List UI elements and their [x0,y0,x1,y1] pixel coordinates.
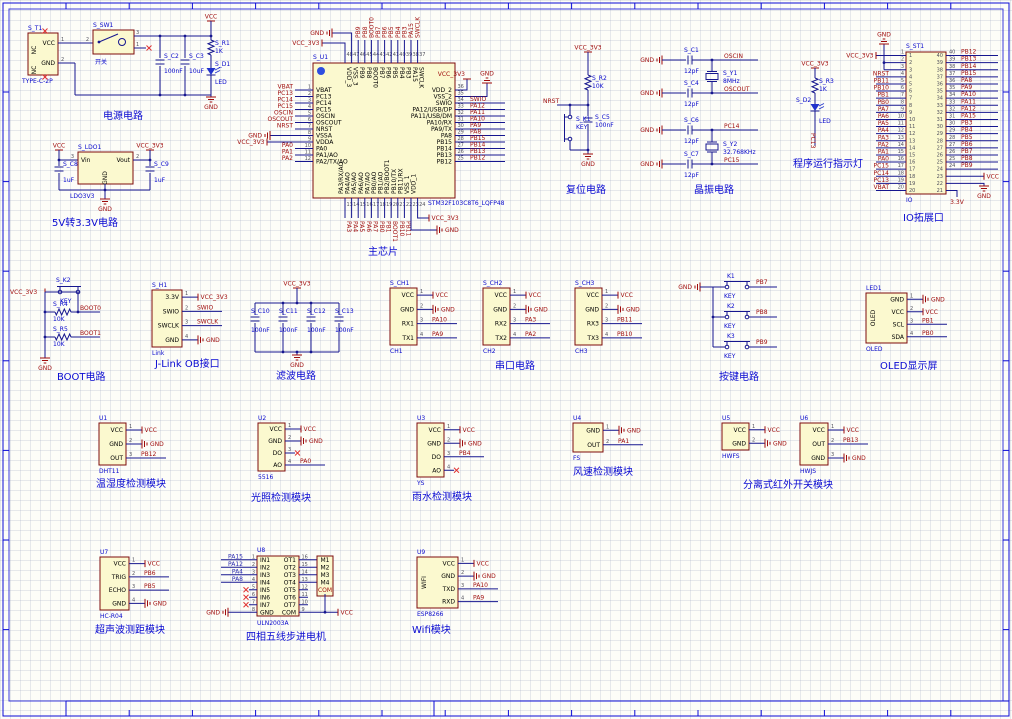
svg-text:TX3: TX3 [586,335,599,342]
svg-text:GND: GND [165,337,179,344]
svg-text:2: 2 [606,439,609,445]
svg-text:S_SW1: S_SW1 [93,22,114,29]
component-s_ch2[interactable]: S_CH2CH2VCC1VCCGND2GNDRX23PA3TX24PA2 [483,280,550,355]
svg-text:VDD_3: VDD_3 [345,67,352,87]
svg-text:29: 29 [458,130,464,136]
svg-text:VCC: VCC [587,292,599,299]
block-title-serial: 串口电路 [495,359,535,372]
svg-text:3: 3 [132,584,135,590]
svg-text:29: 29 [949,128,955,134]
svg-text:23: 23 [937,174,943,180]
svg-text:VCC: VCC [926,309,938,316]
svg-text:IO拓展口: IO拓展口 [903,212,944,224]
svg-text:M1: M1 [321,557,330,564]
svg-text:NC: NC [31,66,38,75]
svg-text:S_D1: S_D1 [215,61,230,68]
svg-text:分离式红外开关模块: 分离式红外开关模块 [743,478,833,491]
svg-text:PB3: PB3 [404,67,411,79]
svg-text:U6: U6 [800,415,808,422]
svg-text:25: 25 [949,156,955,162]
svg-text:Vout: Vout [117,157,131,164]
svg-text:HWJS: HWJS [800,468,816,475]
component-s_u1[interactable]: S_U1STM32F103C8T6_LQFP48VBAT1VBATPC132PC… [237,16,505,242]
svg-text:VCC: VCC [205,14,217,21]
svg-text:1: 1 [129,424,132,430]
svg-text:PA2: PA2 [525,331,536,338]
svg-text:26: 26 [937,152,943,158]
svg-text:PA1: PA1 [618,438,629,445]
svg-text:PA8: PA8 [961,77,972,84]
svg-text:40: 40 [937,53,943,59]
svg-text:OT2: OT2 [284,564,296,571]
svg-text:27: 27 [458,143,464,149]
component-s_h1[interactable]: S_H1Link3.3V1VCC_3V3SWIO2SWIOSWCLK3SWCLK… [152,282,228,357]
boot-circuit[interactable]: VCC_3V3S_K2KEYS_R410KBOOT0S_R510KBOOT1GN… [10,277,101,372]
svg-text:3.3V: 3.3V [165,294,180,301]
block-title-ldo: 5V转3.3V电路 [52,216,118,229]
svg-text:PA9: PA9 [961,84,972,91]
reset-circuit[interactable]: VCC_3V3S_R210KS_C5100nFNRSTS_K1KEYGND [543,45,614,169]
svg-text:PA3: PA3 [878,134,889,141]
svg-text:1: 1 [752,424,755,430]
svg-text:DO: DO [273,450,283,457]
block-title-stepper: 四相五线步进电机 [246,630,326,643]
svg-text:PA12: PA12 [961,105,976,112]
svg-text:5: 5 [909,81,912,87]
svg-text:1: 1 [461,557,464,563]
svg-text:S_K1: S_K1 [576,116,591,123]
svg-text:1: 1 [136,42,139,48]
svg-text:PA3: PA3 [345,221,352,232]
svg-text:2: 2 [752,437,755,443]
component-led1[interactable]: LED1OLEDOLEDGND1GNDVCC2VCCSCL3PB1SDA4PB0 [866,285,947,353]
svg-text:SCL: SCL [893,321,905,328]
svg-text:4: 4 [461,596,464,602]
svg-text:PB8: PB8 [365,67,372,79]
svg-text:2: 2 [61,57,64,63]
svg-text:PA9: PA9 [473,595,484,602]
svg-text:GND: GND [586,427,600,434]
svg-text:OT7: OT7 [284,602,296,609]
component-u4[interactable]: U4FSGND1GNDOUT2PA1 [573,415,643,462]
svg-text:U8: U8 [257,547,265,554]
svg-text:GND: GND [204,104,218,111]
block-title-dht: 温湿度检测模块 [96,477,166,490]
svg-text:GND: GND [585,306,599,313]
svg-text:PB7: PB7 [961,148,973,155]
svg-text:GND: GND [98,206,112,213]
svg-text:PB4: PB4 [459,450,471,457]
svg-text:PB7: PB7 [756,279,768,286]
svg-text:LED1: LED1 [866,285,882,292]
svg-text:U2: U2 [258,415,266,422]
svg-text:1: 1 [901,50,904,56]
svg-text:PB9: PB9 [358,67,365,79]
svg-text:2: 2 [288,435,291,441]
run-led-circuit[interactable]: VCC_3V3S_R31KS_D2LEDPC13 [796,61,834,149]
svg-text:BOOT1: BOOT1 [391,221,398,242]
svg-text:PA5: PA5 [878,120,889,127]
svg-text:3: 3 [136,30,139,36]
svg-text:CH1: CH1 [390,348,403,355]
svg-text:21: 21 [937,188,943,194]
svg-text:电源电路: 电源电路 [103,109,143,122]
svg-text:PC15: PC15 [874,163,890,170]
svg-text:PB11: PB11 [404,221,411,237]
svg-text:OSCOUT: OSCOUT [724,86,750,93]
component-s_st1[interactable]: S_ST1IO140VCC_3V3140PB12239239PB13338338… [846,32,999,207]
svg-text:36: 36 [949,78,955,84]
block-title-filter: 滤波电路 [276,369,316,382]
svg-text:1: 1 [831,424,834,430]
svg-text:6: 6 [901,85,904,91]
svg-text:PB7: PB7 [378,67,385,79]
svg-text:温湿度检测模块: 温湿度检测模块 [96,477,166,490]
svg-text:PB4: PB4 [961,127,973,134]
svg-text:3: 3 [513,318,516,324]
svg-text:PB10: PB10 [617,331,633,338]
svg-text:PC13: PC13 [874,177,890,184]
svg-text:VBAT: VBAT [873,184,889,191]
block-title-power: 电源电路 [103,109,143,122]
svg-text:SWCLK: SWCLK [197,319,219,326]
svg-text:GND: GND [309,438,323,445]
power-circuit[interactable]: S_T1TYPE-C-2PNCNCVCCGND12S_SW1开关231VCCS_… [21,14,230,112]
svg-text:35: 35 [937,89,943,95]
svg-text:VCC_3V3: VCC_3V3 [136,143,163,150]
svg-text:VCC_3V3: VCC_3V3 [801,61,828,68]
svg-text:27: 27 [949,142,955,148]
svg-text:GND: GND [41,60,55,67]
svg-text:VCC: VCC [477,560,489,567]
svg-text:S_C2: S_C2 [164,53,179,60]
svg-text:雨水检测模块: 雨水检测模块 [412,490,472,503]
component-u9[interactable]: U9ESP8266WIFIVCC1VCCGND2GNDTXD3PA10RXD4P… [417,549,498,618]
svg-text:VCC: VCC [892,309,904,316]
svg-text:PA4: PA4 [878,127,889,134]
svg-text:3: 3 [910,318,913,324]
svg-text:10: 10 [909,117,915,123]
component-u1[interactable]: U1DHT11VCC1VCCGND2GNDOUT3PB12 [99,415,166,475]
svg-text:S_C5: S_C5 [595,114,610,121]
svg-text:GND: GND [811,455,825,462]
schematic-canvas[interactable]: 电源电路5V转3.3V电路主芯片复位电路晶振电路程序运行指示灯IO拓展口BOOT… [0,0,1012,719]
svg-text:1: 1 [132,558,135,564]
svg-text:8: 8 [909,103,912,109]
svg-text:PA5: PA5 [358,221,365,232]
crystal-circuit[interactable]: GNDS_C112pFOSCINGNDS_C412pFOSCOUTGNDS_C6… [640,47,758,179]
block-title-jlink: J-Link OB接口 [154,357,220,370]
svg-text:PA1: PA1 [878,148,889,155]
svg-text:12pF: 12pF [684,68,699,75]
svg-text:33: 33 [949,99,955,105]
svg-text:4: 4 [288,459,291,465]
svg-text:PB9: PB9 [961,162,973,169]
svg-text:开关: 开关 [95,58,107,66]
svg-text:PB13: PB13 [961,56,977,63]
key-circuit[interactable]: GNDK1KEYPB7K2KEYPB8K3KEYPB9 [678,273,777,360]
svg-text:RX2: RX2 [495,321,507,328]
svg-text:GND: GND [732,440,746,447]
svg-text:GND: GND [493,306,507,313]
block-title-oled: OLED显示屏 [880,360,937,372]
svg-text:PC14: PC14 [724,123,740,130]
svg-text:IN4: IN4 [260,579,270,586]
svg-text:GND: GND [268,438,282,445]
svg-text:TRIG: TRIG [111,574,127,581]
svg-text:100nF: 100nF [307,327,326,334]
svg-text:24: 24 [419,202,425,208]
svg-text:S_C8: S_C8 [63,161,78,168]
svg-text:S_C10: S_C10 [251,308,270,315]
component-u3[interactable]: U3YSVCC1VCCGND2GNDDO3PB4AO4 [416,415,484,487]
svg-text:S_C13: S_C13 [335,308,354,315]
svg-text:SWIO: SWIO [197,304,214,311]
svg-text:YS: YS [416,480,425,487]
svg-text:4: 4 [185,334,188,340]
svg-text:15: 15 [898,149,904,155]
svg-text:13: 13 [898,135,904,141]
svg-text:S_T1: S_T1 [28,25,42,32]
svg-text:30: 30 [949,121,955,127]
svg-text:S_D2: S_D2 [796,97,811,104]
svg-text:10uF: 10uF [189,68,204,75]
svg-text:S_C9: S_C9 [154,161,169,168]
svg-text:GND: GND [890,296,904,303]
svg-text:33: 33 [937,103,943,109]
svg-text:U3: U3 [417,415,425,422]
svg-text:PB0: PB0 [877,99,889,106]
svg-text:PA6: PA6 [878,113,889,120]
svg-text:AO: AO [273,462,282,469]
svg-text:串口电路: 串口电路 [495,359,535,372]
svg-text:VCC: VCC [341,609,353,616]
svg-text:30: 30 [937,124,943,130]
svg-text:晶振电路: 晶振电路 [694,183,734,196]
block-title-ir: 分离式红外开关模块 [743,478,833,491]
svg-text:S_LDO1: S_LDO1 [78,144,101,151]
svg-text:GND: GND [445,227,459,234]
svg-text:PB8: PB8 [961,155,973,162]
svg-text:M4: M4 [321,579,330,586]
svg-text:3: 3 [420,318,423,324]
svg-text:GND: GND [38,365,52,372]
svg-text:28: 28 [458,136,464,142]
svg-text:1uF: 1uF [154,177,166,184]
svg-text:VCC: VCC [495,292,507,299]
svg-text:SDA: SDA [892,334,905,341]
svg-text:OLED显示屏: OLED显示屏 [880,360,937,372]
svg-text:26: 26 [458,149,464,155]
svg-text:30: 30 [458,123,464,129]
svg-text:1: 1 [185,291,188,297]
svg-text:1: 1 [447,424,450,430]
svg-text:GND: GND [206,609,220,616]
svg-text:4: 4 [605,332,608,338]
svg-text:3: 3 [447,451,450,457]
component-s_ch1[interactable]: S_CH1CH1VCC1VCCGND2GNDRX13PA10TX14PA9 [390,280,457,355]
svg-text:ECHO: ECHO [109,587,126,594]
svg-text:S_Y2: S_Y2 [723,141,737,148]
svg-text:100nF: 100nF [279,327,298,334]
svg-text:超声波测距模块: 超声波测距模块 [95,623,165,636]
block-title-wifi: Wifi模块 [412,624,451,636]
svg-text:24: 24 [937,167,943,173]
svg-text:IN5: IN5 [260,587,270,594]
svg-text:PA4: PA4 [232,568,243,575]
ldo-circuit[interactable]: VCCS_LDO1LDO3V3VinVoutGND32S_C81uFVCC_3V… [53,143,169,214]
svg-text:Vin: Vin [81,157,91,164]
svg-text:程序运行指示灯: 程序运行指示灯 [793,157,863,170]
svg-text:PB1: PB1 [922,317,934,324]
component-u7[interactable]: U7HC-R04VCC1VCCTRIG2PB6ECHO3PB5GND4GND [100,549,169,620]
svg-text:16: 16 [898,156,904,162]
svg-text:22: 22 [937,181,943,187]
svg-text:VCC: VCC [443,560,455,567]
svg-text:VCC_3V3: VCC_3V3 [574,45,601,52]
svg-text:TYPE-C-2P: TYPE-C-2P [21,78,53,85]
svg-text:VCC_3V3: VCC_3V3 [292,40,319,47]
svg-text:14: 14 [898,142,904,148]
component-u5[interactable]: U5HWFSVCC1VCCGND2GND [722,415,787,460]
svg-text:17: 17 [898,163,904,169]
svg-text:STM32F103C8T6_LQFP48: STM32F103C8T6_LQFP48 [428,200,505,207]
svg-text:GND: GND [640,161,654,168]
svg-text:VCC: VCC [847,427,859,434]
svg-text:PB12: PB12 [961,49,977,56]
svg-text:39: 39 [949,57,955,63]
svg-text:RX1: RX1 [402,321,414,328]
svg-text:3: 3 [909,67,912,73]
svg-text:CH2: CH2 [483,348,496,355]
svg-text:GND: GND [290,362,304,369]
svg-text:S_R2: S_R2 [592,75,607,82]
svg-text:VCC: VCC [621,292,633,299]
schematic-sheet: 电源电路5V转3.3V电路主芯片复位电路晶振电路程序运行指示灯IO拓展口BOOT… [0,0,1012,719]
svg-text:34: 34 [458,97,464,103]
svg-text:1: 1 [288,423,291,429]
svg-text:38: 38 [937,67,943,73]
component-u8[interactable]: U8ULN2003AIN11PA15OT116IN22PA12OT215IN33… [206,547,353,627]
svg-text:AO: AO [432,467,441,474]
svg-text:3: 3 [185,320,188,326]
svg-text:3: 3 [901,64,904,70]
svg-text:4: 4 [420,332,423,338]
svg-text:28: 28 [937,138,943,144]
svg-text:1: 1 [420,289,423,295]
svg-text:PB5: PB5 [144,583,156,590]
svg-text:3: 3 [129,452,132,458]
svg-text:3: 3 [605,318,608,324]
svg-text:RX3: RX3 [587,321,599,328]
svg-text:GND: GND [441,306,455,313]
svg-text:37: 37 [937,74,943,80]
svg-text:10K: 10K [53,341,66,348]
svg-text:DO: DO [432,454,442,461]
svg-text:PB12: PB12 [437,159,453,166]
svg-text:2: 2 [910,306,913,312]
svg-text:IN3: IN3 [260,572,270,579]
svg-text:GND: GND [310,30,324,37]
svg-text:OT6: OT6 [284,594,296,601]
svg-text:SWCLK: SWCLK [415,16,422,38]
svg-text:5516: 5516 [258,474,273,481]
svg-text:GND: GND [534,306,548,313]
svg-text:VCC: VCC [429,427,441,434]
svg-text:IN7: IN7 [260,602,270,609]
svg-text:35: 35 [949,85,955,91]
svg-text:KEY: KEY [576,124,588,131]
component-u2[interactable]: U25516VCC1VCCGND2GNDDO3AO4PA0 [258,415,325,481]
svg-text:VCC: VCC [436,292,448,299]
svg-text:OT3: OT3 [284,572,296,579]
svg-text:LDO3V3: LDO3V3 [70,193,95,200]
svg-text:PB0: PB0 [378,221,385,233]
svg-text:S_R3: S_R3 [819,78,834,85]
filter-circuit[interactable]: VCC_3V3S_C10100nFS_C11100nFS_C12100nFS_C… [251,281,355,370]
svg-text:KEY: KEY [724,353,736,360]
svg-text:VCC: VCC [145,427,157,434]
block-title-rain: 雨水检测模块 [412,490,472,503]
svg-text:OT1: OT1 [284,557,296,564]
svg-text:2: 2 [513,303,516,309]
svg-text:U4: U4 [573,415,581,422]
svg-text:Link: Link [152,350,165,357]
svg-text:PA15: PA15 [411,67,418,82]
svg-text:PA2: PA2 [282,155,293,162]
svg-text:RXD: RXD [442,599,455,606]
svg-text:S_C4: S_C4 [684,80,699,87]
svg-text:37: 37 [949,71,955,77]
svg-text:S_R1: S_R1 [215,40,230,47]
svg-text:主芯片: 主芯片 [368,245,398,258]
svg-text:29: 29 [937,131,943,137]
svg-text:6: 6 [909,89,912,95]
svg-text:U1: U1 [99,415,107,422]
svg-text:S_R5: S_R5 [53,326,68,333]
svg-text:40: 40 [949,50,955,56]
svg-text:S_CH3: S_CH3 [575,280,595,287]
svg-text:PB15: PB15 [961,70,977,77]
svg-text:VCC: VCC [987,173,999,180]
svg-text:33: 33 [458,104,464,110]
component-u6[interactable]: U6HWJSVCC1VCCOUT2PB13GND3GND [800,415,868,475]
svg-text:2: 2 [831,438,834,444]
svg-text:PC13: PC13 [809,133,816,149]
svg-text:VCC: VCC [304,426,316,433]
svg-text:31: 31 [949,113,955,119]
svg-text:VCC_3V3: VCC_3V3 [432,215,459,222]
svg-text:PB4: PB4 [398,67,405,79]
svg-text:S_C3: S_C3 [189,53,204,60]
svg-text:2: 2 [605,303,608,309]
svg-text:OUT: OUT [812,441,825,448]
svg-text:GND: GND [441,573,455,580]
svg-text:IN6: IN6 [260,594,270,601]
svg-text:PA3: PA3 [525,317,536,324]
svg-text:PB11: PB11 [874,77,890,84]
svg-text:GND: GND [400,306,414,313]
block-title-ultra: 超声波测距模块 [95,623,165,636]
svg-text:3: 3 [831,452,834,458]
component-s_ch3[interactable]: S_CH3CH3VCC1VCCGND2GNDRX33PB11TX34PB10 [575,280,642,355]
svg-text:13: 13 [909,138,915,144]
svg-text:2: 2 [909,60,912,66]
svg-text:PB1: PB1 [877,92,889,99]
svg-text:GND: GND [260,609,274,616]
svg-text:100nF: 100nF [335,327,354,334]
svg-text:OUT: OUT [110,455,123,462]
